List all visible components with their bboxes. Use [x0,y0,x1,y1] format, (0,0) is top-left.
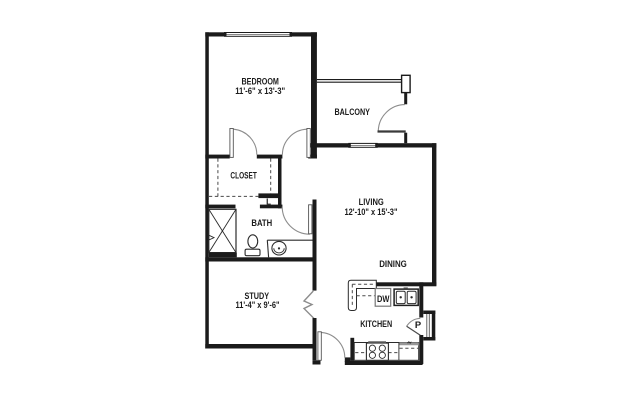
svg-text:DINING: DINING [379,259,407,269]
svg-text:BALCONY: BALCONY [334,106,370,117]
svg-text:11'-4" x 9'-6": 11'-4" x 9'-6" [236,299,280,310]
svg-text:BATH: BATH [251,218,272,228]
svg-text:CLOSET: CLOSET [230,170,257,180]
svg-text:11'-6" x 13'-3": 11'-6" x 13'-3" [235,85,285,96]
svg-text:DW: DW [377,294,390,304]
svg-text:KITCHEN: KITCHEN [360,319,392,329]
svg-text:12'-10" x 15'-3": 12'-10" x 15'-3" [345,206,398,217]
svg-text:P: P [415,319,421,330]
